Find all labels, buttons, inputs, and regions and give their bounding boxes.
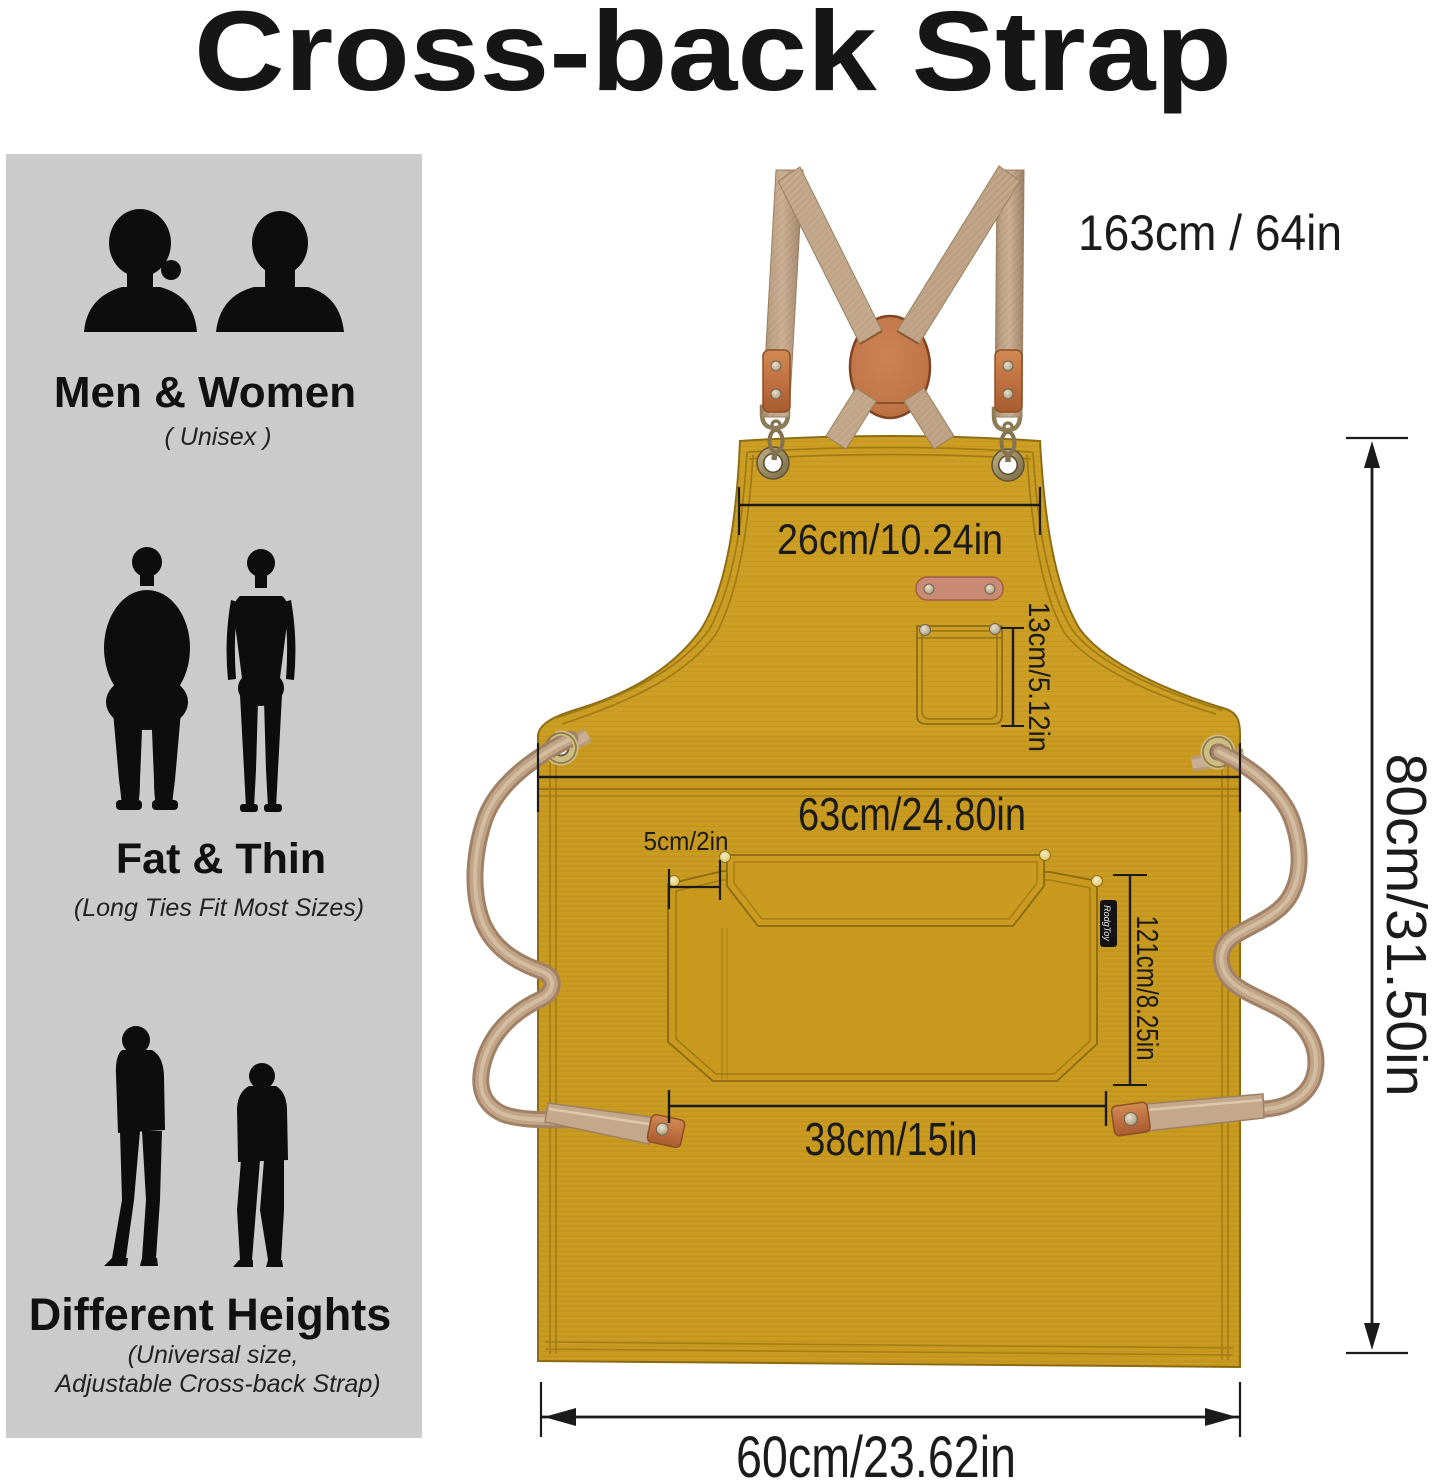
svg-text:Men & Women: Men & Women <box>54 368 356 417</box>
svg-text:(Long Ties Fit Most Sizes): (Long Ties Fit Most Sizes) <box>74 894 364 922</box>
svg-text:121cm/8.25in: 121cm/8.25in <box>1130 916 1165 1061</box>
svg-text:Different Heights: Different Heights <box>29 1289 392 1340</box>
svg-text:80cm/31.50in: 80cm/31.50in <box>1374 754 1438 1097</box>
svg-text:60cm/23.62in: 60cm/23.62in <box>736 1425 1016 1483</box>
svg-text:Cross-back Strap: Cross-back Strap <box>194 0 1232 114</box>
svg-text:(Universal size,: (Universal size, <box>128 1341 299 1369</box>
svg-text:163cm / 64in: 163cm / 64in <box>1078 205 1342 261</box>
svg-text:Adjustable Cross-back Strap): Adjustable Cross-back Strap) <box>53 1370 380 1398</box>
svg-text:38cm/15in: 38cm/15in <box>805 1113 978 1165</box>
svg-text:63cm/24.80in: 63cm/24.80in <box>798 788 1026 840</box>
svg-text:26cm/10.24in: 26cm/10.24in <box>777 516 1003 564</box>
svg-text:Fat & Thin: Fat & Thin <box>116 835 326 883</box>
svg-text:13cm/5.12in: 13cm/5.12in <box>1022 602 1055 752</box>
svg-text:RodgToy: RodgToy <box>1102 905 1112 941</box>
svg-text:5cm/2in: 5cm/2in <box>644 826 729 856</box>
svg-text:( Unisex ): ( Unisex ) <box>165 423 272 451</box>
